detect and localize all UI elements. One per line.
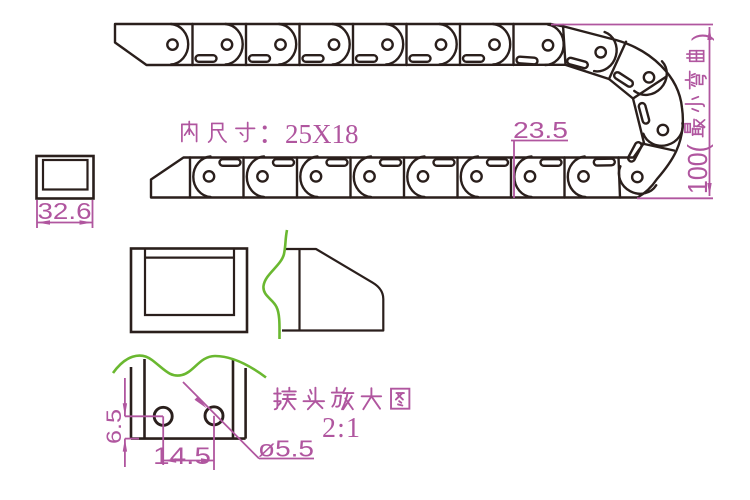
svg-text:100(: 100(: [682, 143, 713, 194]
svg-text:): ): [688, 33, 715, 41]
svg-text:23.5: 23.5: [513, 117, 568, 143]
svg-text:14.5: 14.5: [153, 443, 211, 470]
svg-text:32.6: 32.6: [38, 198, 92, 224]
svg-text:：25X18: ：25X18: [258, 119, 359, 149]
svg-text:2:1: 2:1: [322, 413, 360, 444]
svg-text:6.5: 6.5: [103, 409, 126, 444]
svg-text:ø5.5: ø5.5: [258, 436, 314, 462]
